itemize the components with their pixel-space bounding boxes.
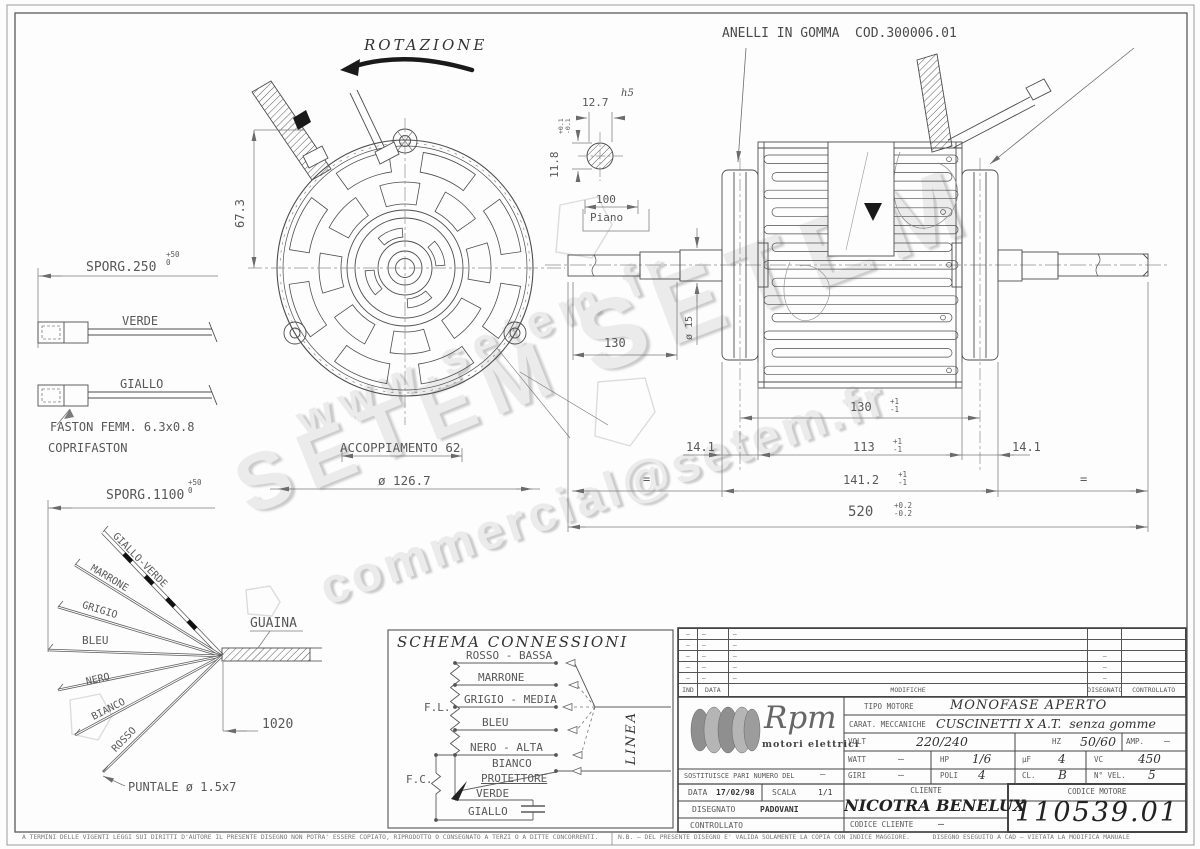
- dim-sporg-250-tol: +500: [166, 251, 180, 268]
- revision-row: –– ––: [679, 651, 1185, 662]
- guaina-label: GUAINA: [250, 617, 297, 631]
- drawing-sheet: www.setem.fr SETEM SETEM commercial@sete…: [0, 0, 1200, 849]
- codice-motore-label: CODICE MOTORE: [1008, 788, 1186, 796]
- terminal-box: [828, 142, 894, 256]
- coprifaston-label: COPRIFASTON: [48, 442, 127, 455]
- dia-126-7-label: ø 126.7: [378, 474, 431, 488]
- dim-520: 520: [848, 505, 873, 520]
- dim-67-3: 67.3: [234, 199, 247, 228]
- giri-label: GIRI: [848, 772, 866, 780]
- connector-wires: [38, 322, 217, 425]
- hp-label: HP: [940, 756, 949, 764]
- footer-disclaimer-right: N.B. – DEL PRESENTE DISEGNO E' VALIDA SO…: [618, 835, 1130, 842]
- dim-141-2-tol: +1-1: [898, 471, 907, 488]
- schema-fc-label: F.C.: [406, 774, 433, 786]
- poli-label: POLI: [940, 772, 958, 780]
- carat-label: CARAT. MECCANICHE: [849, 721, 926, 729]
- eq-mark-right: =: [1080, 473, 1087, 486]
- dim-14-1-right: 14.1: [1012, 441, 1041, 454]
- watt-label: WATT: [848, 756, 866, 764]
- sostituisce-value: –: [820, 771, 825, 781]
- hz-label: HZ: [1052, 738, 1061, 746]
- scala-value: 1/1: [818, 789, 832, 798]
- faston-label: FASTON FEMM. 6.3x0.8: [50, 421, 195, 434]
- codice-motore-value: 110539.01: [1008, 798, 1186, 828]
- eq-mark-left: =: [643, 473, 650, 486]
- dim-141-2: 141.2: [843, 474, 879, 487]
- disegnato-label: DISEGNATO: [692, 806, 735, 815]
- dim-130-body: 130: [850, 401, 872, 414]
- schema-grigio-media: GRIGIO - MEDIA: [464, 694, 557, 706]
- cl-label: CL.: [1022, 772, 1036, 780]
- revision-table: –– – –– – –– –– –– –– –– –– INDDATA MODI…: [678, 628, 1186, 697]
- hz-value: 50/60: [1080, 735, 1116, 749]
- hp-value: 1/6: [972, 753, 991, 766]
- uf-value: 4: [1058, 753, 1066, 766]
- dim-11-8-tol: +0.1-0.1: [558, 118, 572, 134]
- cliente-value: NICOTRA BENELUX: [844, 797, 1008, 815]
- protettore-symbol: [451, 781, 467, 801]
- revision-header: INDDATA MODIFICHEDISEGNATOCONTROLLATO: [679, 684, 1185, 696]
- fan-wire-bleu: BLEU: [82, 635, 109, 647]
- schema-bianco: BIANCO: [492, 758, 532, 770]
- schema-bleu: BLEU: [482, 717, 509, 729]
- accoppiamento-label: ACCOPPIAMENTO 62: [340, 441, 460, 455]
- dim-113-tol: +1-1: [893, 438, 902, 455]
- cliente-label: CLIENTE: [844, 787, 1008, 795]
- revision-row: –– –: [679, 629, 1185, 640]
- logo-rotor-graphic: [691, 707, 760, 753]
- puntale-label: PUNTALE ø 1.5x7: [128, 781, 236, 794]
- giri-value: –: [898, 770, 904, 781]
- sostituisce-label: SOSTITUISCE PARI NUMERO DEL: [684, 773, 795, 780]
- schema-giallo: GIALLO: [468, 806, 508, 818]
- dim-1020: 1020: [262, 718, 293, 732]
- dim-h5: h5: [621, 88, 634, 99]
- carat-value: CUSCINETTI X A.T. senza gomme: [936, 717, 1156, 731]
- vc-value: 450: [1138, 753, 1161, 766]
- front-view: [248, 81, 608, 438]
- uf-label: µF: [1022, 756, 1031, 764]
- shaft-section-detail: [572, 112, 625, 181]
- volt-label: VOLT: [848, 738, 866, 746]
- anelli-label: ANELLI IN GOMMA COD.300006.01: [722, 27, 957, 41]
- rotation-arrow: [340, 59, 472, 76]
- revision-row: –– –: [679, 640, 1185, 651]
- disegnato-value: PADOVANI: [760, 806, 799, 815]
- scala-label: SCALA: [772, 789, 796, 798]
- schema-rosso-bassa: ROSSO - BASSA: [466, 650, 552, 662]
- watt-value: –: [898, 754, 904, 765]
- tipo-motore-value: MONOFASE APERTO: [950, 699, 1107, 713]
- revision-row: –– ––: [679, 673, 1185, 684]
- dim-130-tol: +1-1: [890, 398, 899, 415]
- schema-fl-label: F.L.: [424, 702, 451, 714]
- dim-dia-15: ø 15: [684, 316, 695, 340]
- wire-giallo-label: GIALLO: [120, 378, 163, 391]
- poli-value: 4: [978, 769, 986, 782]
- piano-label: Piano: [590, 212, 623, 224]
- dim-520-tol: +0.2-0.2: [894, 502, 912, 519]
- dim-100: 100: [596, 194, 616, 206]
- rotation-label: ROTAZIONE: [364, 37, 487, 54]
- watermark-blobs: [70, 197, 655, 740]
- front-view-dims: [38, 130, 540, 489]
- logo-name: Rpm: [764, 701, 837, 735]
- schema-verde: VERDE: [476, 788, 509, 800]
- vc-label: VC: [1094, 756, 1103, 764]
- revision-row: –– ––: [679, 662, 1185, 673]
- schema-nero-alta: NERO - ALTA: [470, 742, 543, 754]
- nvel-value: 5: [1148, 769, 1156, 782]
- logo-subtitle: motori elettrici: [762, 740, 860, 750]
- data-value: 17/02/98: [716, 789, 755, 798]
- schema-marrone: MARRONE: [478, 672, 524, 684]
- dim-113: 113: [853, 441, 875, 454]
- footer-disclaimer-left: A TERMINI DELLE VIGENTI LEGGI SUI DIRITT…: [22, 835, 598, 842]
- codice-cliente-label: CODICE CLIENTE: [850, 821, 913, 829]
- volt-value: 220/240: [916, 735, 968, 749]
- dim-sporg-1100: SPORG.1100: [106, 489, 184, 503]
- schema-protettore: PROTETTORE: [481, 773, 547, 785]
- data-label: DATA: [688, 789, 707, 798]
- dim-12-7: 12.7: [582, 97, 609, 109]
- dim-14-1-left: 14.1: [686, 441, 715, 454]
- controllato-label: CONTROLLATO: [690, 822, 743, 831]
- codice-cliente-value: –: [938, 819, 944, 830]
- dim-130-shaft: 130: [604, 337, 626, 350]
- cl-value: B: [1058, 769, 1067, 782]
- schema-linea-label: LINEA: [625, 711, 639, 765]
- amp-value: –: [1164, 736, 1170, 747]
- wire-verde-label: VERDE: [122, 315, 158, 328]
- dim-sporg-1100-tol: +500: [188, 479, 202, 496]
- dim-11-8: 11.8: [549, 152, 561, 179]
- nvel-label: N° VEL.: [1094, 772, 1126, 780]
- dim-sporg-250: SPORG.250: [86, 261, 156, 275]
- tipo-motore-label: TIPO MOTORE: [864, 703, 914, 711]
- amp-label: AMP.: [1126, 738, 1144, 746]
